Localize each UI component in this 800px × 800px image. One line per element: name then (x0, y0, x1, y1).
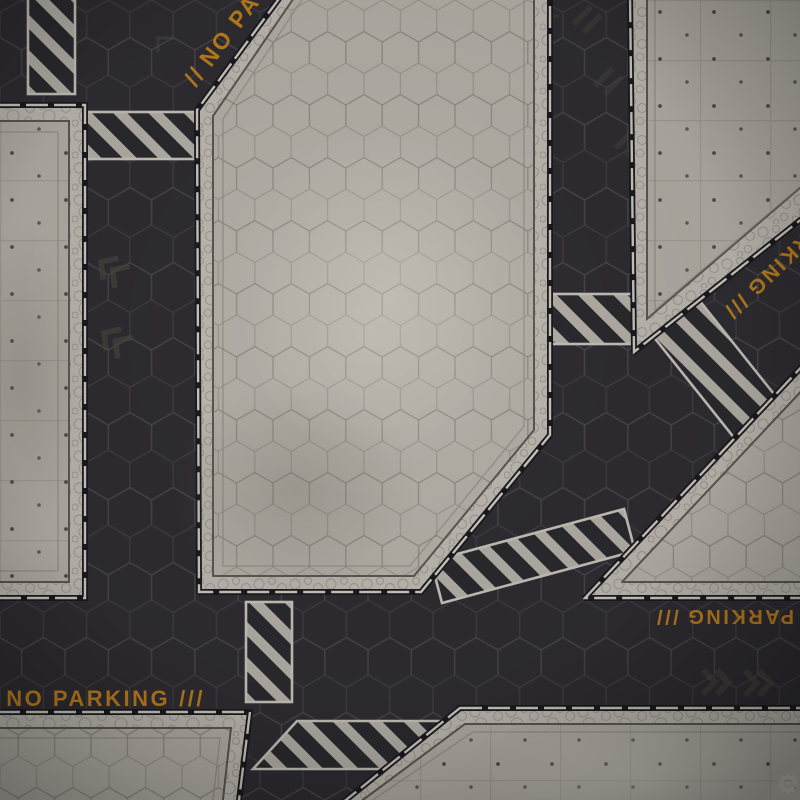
vignette-overlay (0, 0, 800, 800)
battle-mat: //NO PARKING PARKING/// PARKING/// //NO … (0, 0, 800, 800)
mat-canvas: //NO PARKING PARKING/// PARKING/// //NO … (0, 0, 800, 800)
